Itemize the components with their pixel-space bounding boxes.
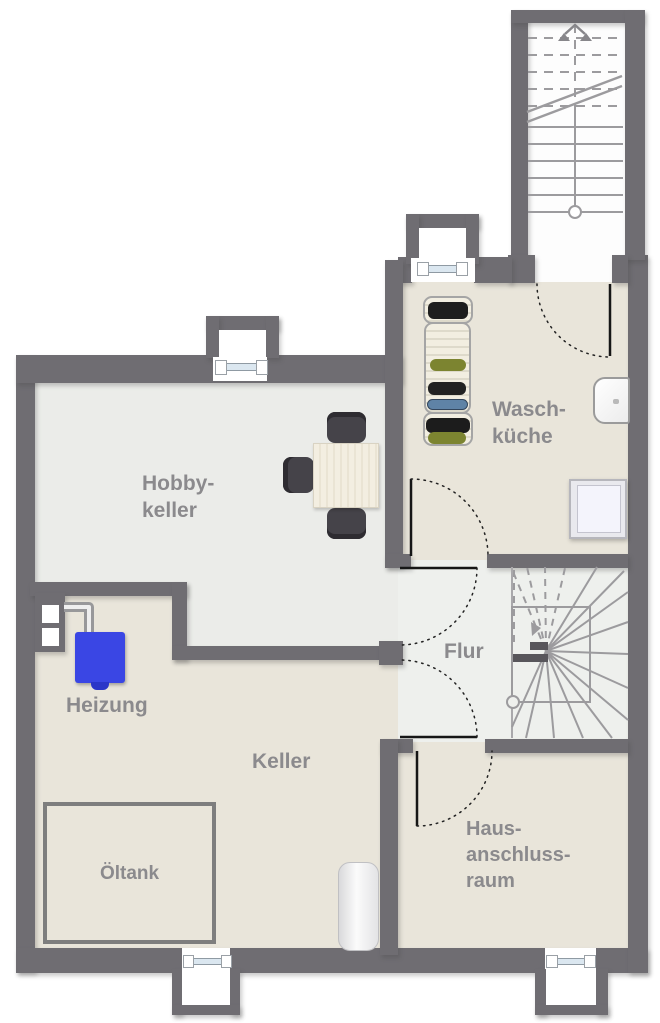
- window-well-opening: [182, 969, 230, 1005]
- room-label-hausanschlussraum: Haus- anschluss- raum: [466, 816, 570, 894]
- stairwell-landing: [520, 20, 628, 282]
- window-pane: [558, 958, 584, 965]
- window-frame: [417, 262, 429, 276]
- table: [313, 443, 379, 508]
- chair: [283, 457, 314, 493]
- wall: [625, 10, 645, 260]
- laundry-dark: [428, 382, 466, 395]
- label-line: Hobby-: [142, 470, 214, 497]
- label-line: keller: [142, 497, 214, 524]
- room-label-heizung: Heizung: [66, 692, 148, 719]
- wall: [16, 355, 35, 972]
- window-pane: [429, 265, 456, 273]
- chair: [327, 412, 366, 443]
- wall: [511, 10, 528, 258]
- wall: [385, 554, 411, 568]
- wall: [612, 255, 628, 283]
- window-frame: [256, 360, 268, 375]
- wall: [385, 260, 403, 567]
- window-pane: [227, 363, 256, 371]
- wall: [16, 355, 402, 383]
- chimney-flue: [42, 605, 59, 623]
- room-flur-floor: [398, 560, 633, 745]
- window-well-opening: [219, 330, 266, 358]
- window-well: [206, 316, 219, 358]
- heating-boiler: [75, 632, 125, 683]
- oil-tank-outline: Öltank: [43, 802, 216, 944]
- window-frame: [584, 955, 596, 968]
- window-well: [172, 1005, 240, 1015]
- label-line: raum: [466, 868, 570, 894]
- sink-drain: [613, 399, 619, 404]
- heating-boiler-tab: [91, 682, 109, 690]
- chimney-flue: [42, 628, 59, 646]
- window-pane: [194, 958, 221, 965]
- label-line: Haus-: [466, 816, 570, 842]
- wall: [487, 554, 628, 568]
- basement-floorplan: Öltank Hobby- keller Wasch- küche Flur H…: [0, 0, 660, 1023]
- window-well: [266, 316, 279, 358]
- freezer-lid: [577, 485, 621, 533]
- room-label-waschkueche: Wasch- küche: [492, 396, 566, 450]
- chair: [327, 508, 366, 539]
- wall: [628, 255, 648, 973]
- wall: [511, 10, 643, 23]
- laundry-green: [430, 359, 466, 371]
- wall: [508, 255, 535, 283]
- window-frame: [546, 955, 558, 968]
- label-line: küche: [492, 423, 566, 450]
- label-line: anschluss-: [466, 842, 570, 868]
- wall: [474, 257, 512, 283]
- window-frame: [215, 360, 227, 375]
- label-line: Wasch-: [492, 396, 566, 423]
- window-well: [535, 1005, 608, 1015]
- water-tank: [338, 862, 379, 951]
- laundry-dark: [428, 302, 468, 319]
- room-label-keller: Keller: [252, 748, 310, 775]
- room-label-flur: Flur: [444, 638, 484, 665]
- window-frame: [221, 955, 232, 968]
- window-well: [406, 214, 419, 264]
- window-frame: [456, 262, 468, 276]
- laundry-dark: [426, 418, 470, 433]
- window-well: [466, 214, 479, 264]
- window-well-opening: [546, 969, 596, 1005]
- laundry-blue: [427, 399, 468, 410]
- room-label-oeltank: Öltank: [100, 860, 159, 887]
- wall: [172, 646, 382, 660]
- sink: [593, 377, 630, 424]
- freezer: [569, 479, 627, 539]
- laundry-green: [428, 432, 466, 444]
- room-label-hobbykeller: Hobby- keller: [142, 470, 214, 524]
- wall: [379, 641, 403, 665]
- wall: [380, 739, 398, 955]
- wall: [485, 739, 628, 753]
- window-frame: [183, 955, 194, 968]
